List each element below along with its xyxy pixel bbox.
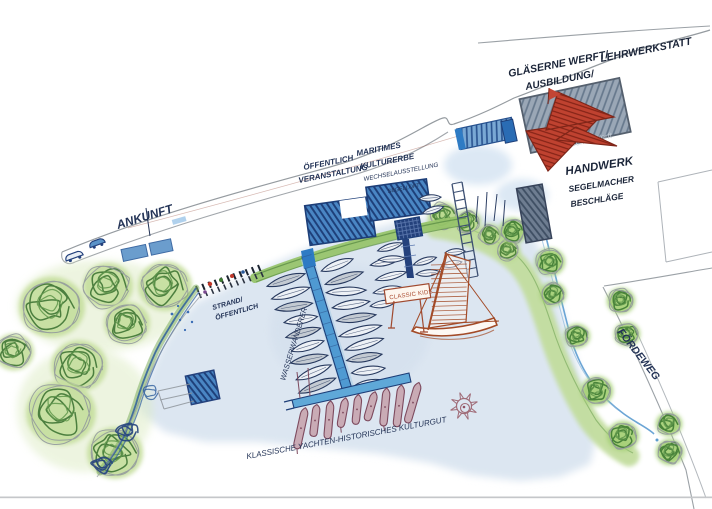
svg-text:BESCHLÄGE: BESCHLÄGE: [570, 191, 625, 209]
svg-text:SEGELMACHER: SEGELMACHER: [568, 174, 636, 194]
svg-text:LEHRWERKSTATT: LEHRWERKSTATT: [599, 35, 694, 65]
svg-text:ANKUNFT: ANKUNFT: [114, 201, 176, 232]
